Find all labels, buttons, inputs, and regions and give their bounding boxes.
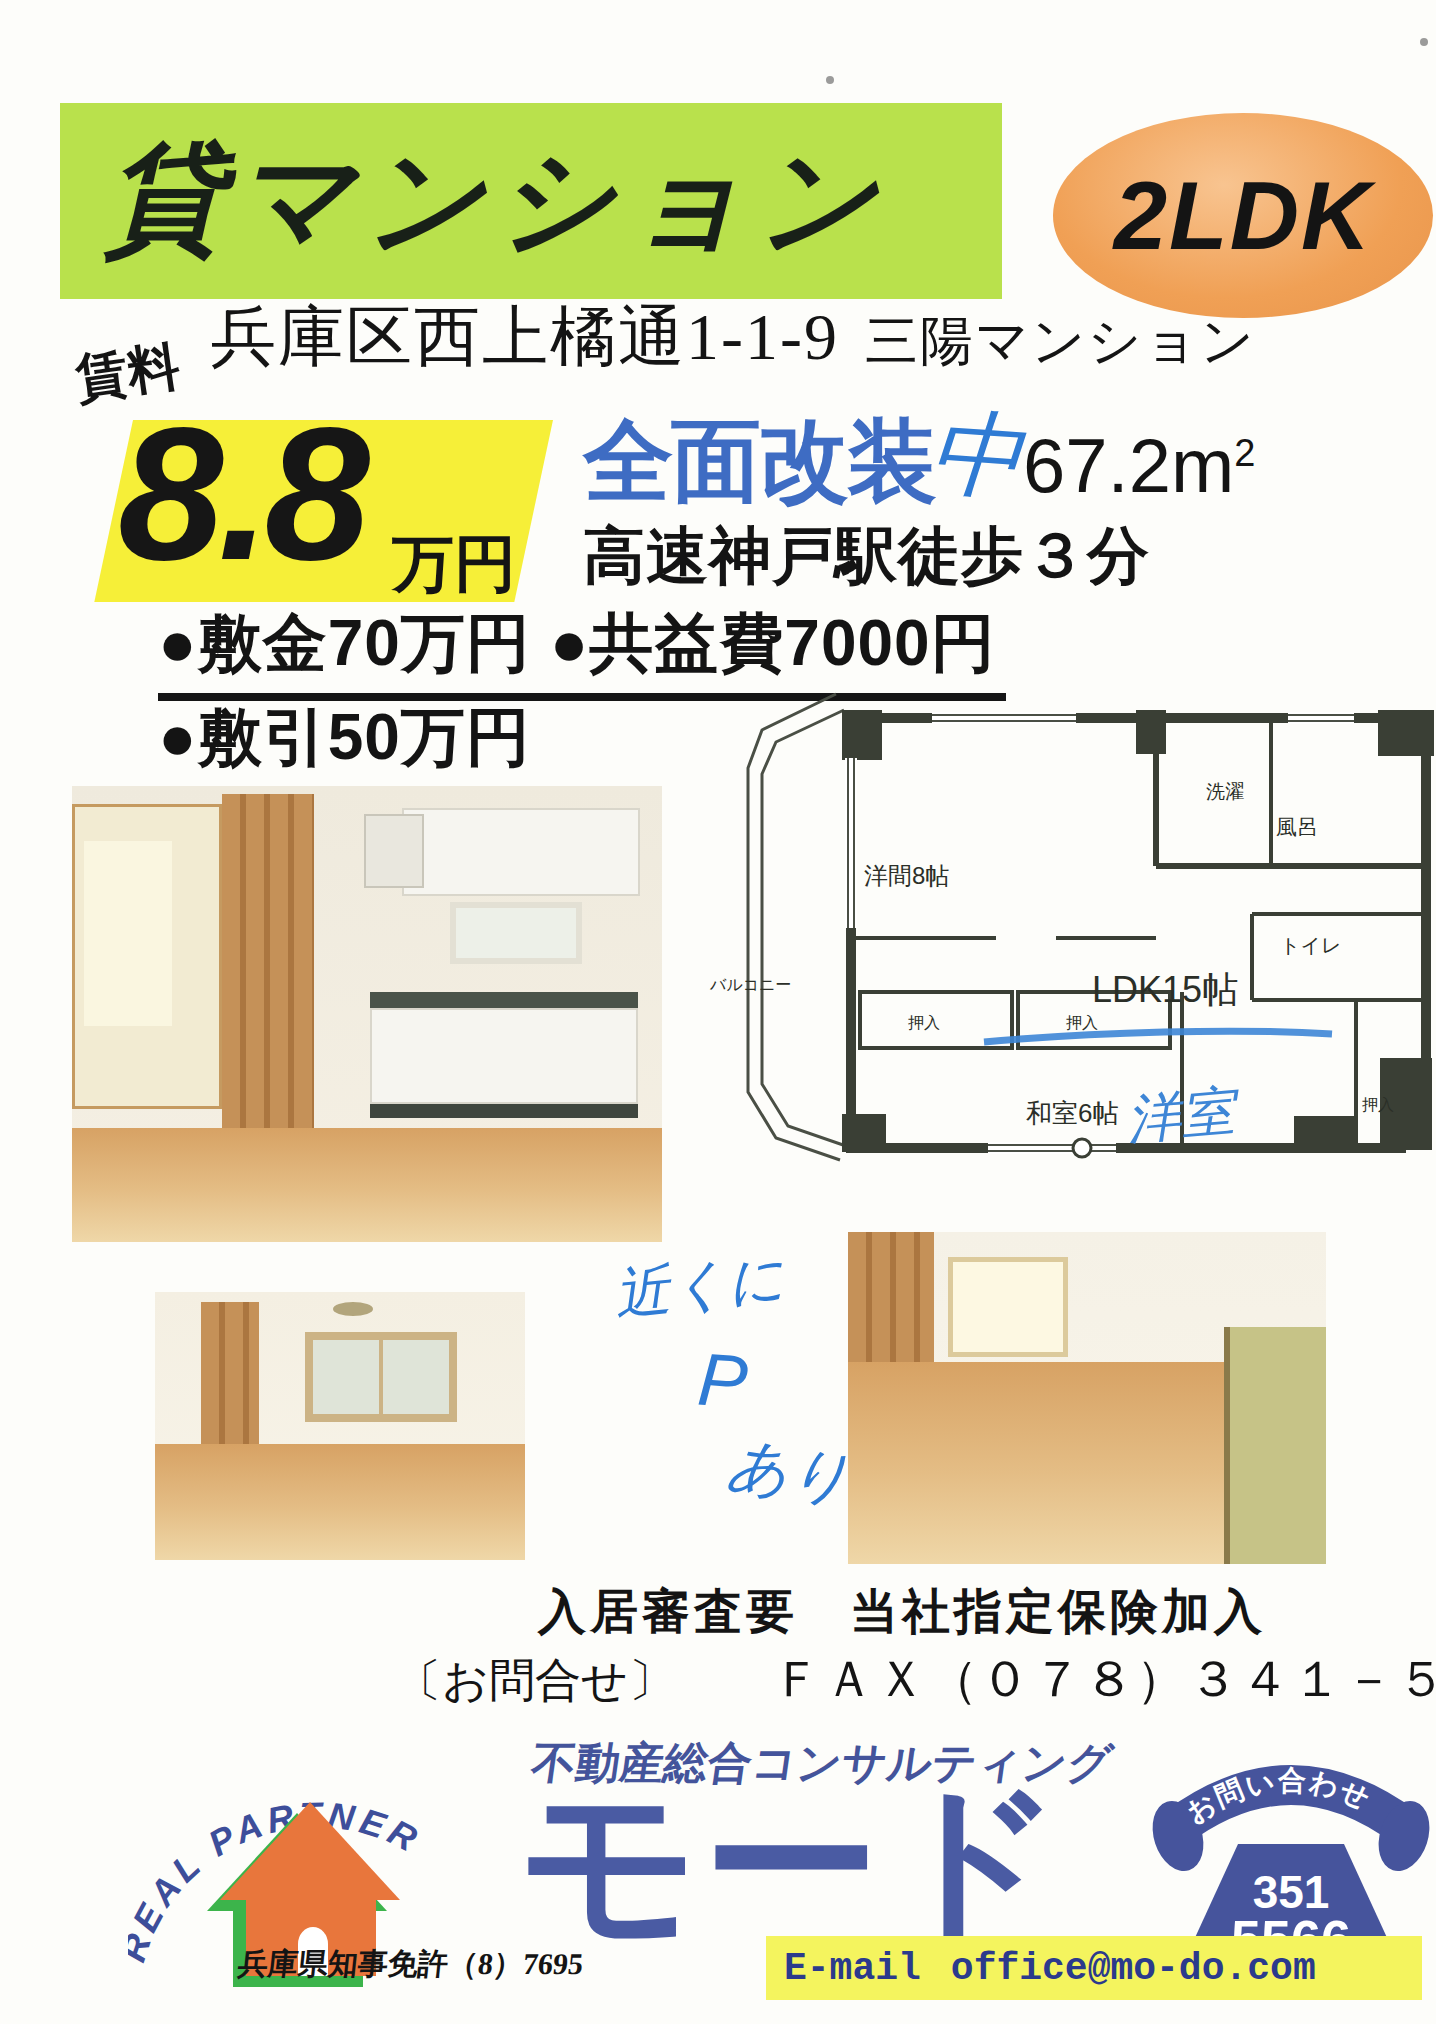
room-label-western: 洋間8帖 xyxy=(864,862,949,889)
photo1-lower-cabinets xyxy=(370,1008,638,1104)
photo3-tatami xyxy=(1230,1327,1326,1564)
scan-artifact-dot-2 xyxy=(1420,38,1428,46)
photo-room-window xyxy=(155,1292,525,1560)
handwritten-strike-line xyxy=(984,1031,1332,1042)
photo1-range-hood xyxy=(364,814,424,888)
room-label-closet-1: 押入 xyxy=(908,1014,940,1031)
fax-number: ＦＡＸ（０７８）３４１－５４７ xyxy=(772,1646,1436,1713)
renovation-handwritten: 中 xyxy=(926,405,1026,505)
room-label-balcony: バルコニー xyxy=(709,976,792,993)
photo1-floor xyxy=(72,1128,662,1242)
title-banner-text: 貸マンション xyxy=(106,121,888,281)
address-text: 兵庫区西上橘通1-1-9 xyxy=(210,292,839,382)
title-banner: 貸マンション xyxy=(60,103,1002,299)
email-bar: E-mail office@mo-do.com xyxy=(766,1936,1422,2000)
plan-symbol-circle xyxy=(1073,1139,1091,1157)
photo1-kitchen-window xyxy=(450,902,582,964)
window-marks xyxy=(845,712,1354,1154)
wall-blocks xyxy=(842,710,1434,1152)
handwritten-note-line1: 近くに xyxy=(612,1249,788,1323)
outer-walls xyxy=(846,718,1432,1148)
email-address: office@mo-do.com xyxy=(951,1947,1316,1990)
floor-plan: 洋間8帖 洗濯 風呂 トイレ LDK15帖 押入 押入 和室6帖 押入 バルコニ… xyxy=(696,688,1436,1188)
photo1-kickplate xyxy=(370,1104,638,1118)
flyer-page: 貸マンション 2LDK 賃料 兵庫区西上橘通1-1-9 三陽マンション 8.8 … xyxy=(0,0,1436,2024)
room-label-closet-2: 押入 xyxy=(1066,1014,1098,1031)
inquiry-label: 〔お問合せ〕 xyxy=(396,1650,674,1712)
terms-line-1: ●敷金70万円 ●共益費7000円 xyxy=(158,600,1006,701)
room-labels: 洋間8帖 洗濯 風呂 トイレ LDK15帖 押入 押入 和室6帖 押入 バルコニ… xyxy=(709,781,1394,1128)
rent-value: 8.8 xyxy=(118,398,364,588)
screening-note: 入居審査要 当社指定保険加入 xyxy=(538,1580,1266,1644)
area-value: 67.2m xyxy=(1023,423,1234,508)
access-text: 高速神戸駅徒歩３分 xyxy=(583,514,1150,598)
layout-badge: 2LDK xyxy=(1053,113,1433,318)
terms-line-2: ●敷引50万円 xyxy=(158,694,541,795)
area-superscript: 2 xyxy=(1234,432,1255,474)
handwritten-note-line2: P xyxy=(695,1342,749,1419)
building-name: 三陽マンション xyxy=(865,306,1256,378)
room-label-closet-3: 押入 xyxy=(1362,1096,1394,1113)
photo1-window-glow xyxy=(84,841,172,1026)
photo1-upper-cabinets xyxy=(402,808,640,896)
handwritten-room-note: 洋室 xyxy=(1124,1080,1243,1150)
rent-unit: 万円 xyxy=(392,522,516,606)
photo1-counter xyxy=(370,992,638,1008)
photo2-window-mullion xyxy=(379,1338,383,1416)
area-text: 67.2m2 xyxy=(1023,428,1255,504)
email-label: E-mail xyxy=(784,1947,921,1990)
room-label-japanese: 和室6帖 xyxy=(1026,1098,1118,1128)
photo2-floor xyxy=(155,1444,525,1560)
photo-living-kitchen xyxy=(72,786,662,1242)
layout-badge-text: 2LDK xyxy=(1114,161,1373,271)
photo2-ceiling-light xyxy=(333,1302,373,1316)
photo-room-tatami xyxy=(848,1232,1326,1564)
balcony-outline-inner xyxy=(762,710,846,1146)
photo3-window-glow xyxy=(948,1257,1068,1357)
room-label-bath: 風呂 xyxy=(1276,815,1318,838)
address-row: 兵庫区西上橘通1-1-9 三陽マンション xyxy=(210,292,1256,382)
scan-artifact-dot-1 xyxy=(826,76,834,84)
room-label-laundry: 洗濯 xyxy=(1206,781,1244,802)
photo1-sliding-door xyxy=(222,794,314,1129)
handwritten-note-line3: あり xyxy=(724,1434,854,1511)
renovation-text: 全面改装 xyxy=(583,414,935,509)
room-label-toilet: トイレ xyxy=(1280,934,1341,956)
renovation-row: 全面改装 中 67.2m2 xyxy=(583,414,1255,509)
room-label-ldk: LDK15帖 xyxy=(1092,969,1238,1010)
interior-walls-thin xyxy=(851,718,1422,1148)
